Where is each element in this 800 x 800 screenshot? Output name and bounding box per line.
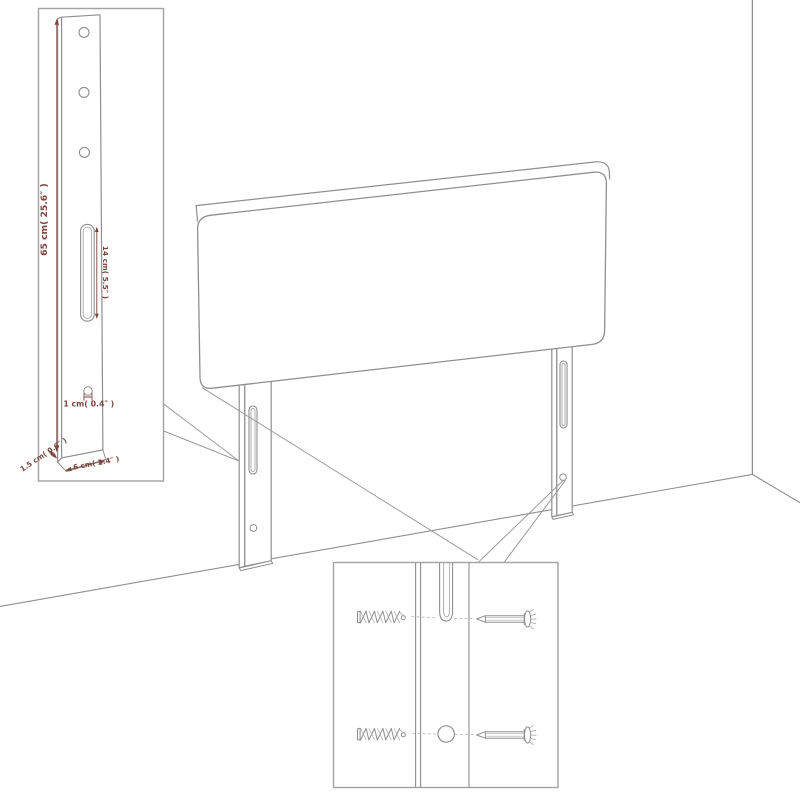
- headboard-panel: [196, 162, 609, 389]
- dim-height-label: 65 cm( 25.6″ ): [39, 183, 50, 256]
- right-leg: [552, 342, 574, 519]
- left-leg-side-face: [239, 380, 245, 568]
- callout-line-hole-to-detail-left: [478, 481, 562, 562]
- strut-inset: 65 cm( 25.6″ ) 14 cm( 5.5″ ) 1 cm( 0.4″ …: [18, 9, 163, 482]
- dim-hole-label: 1 cm( 0.4″ ): [63, 399, 114, 408]
- callout-line-strut-lower: [164, 431, 239, 461]
- diagram-canvas: 65 cm( 25.6″ ) 14 cm( 5.5″ ) 1 cm( 0.4″ …: [0, 0, 800, 800]
- headboard-front-face: [198, 172, 607, 388]
- detail-inset-box: [334, 563, 559, 788]
- dim-slot-label: 14 cm( 5.5″ ): [101, 246, 110, 299]
- callout-line-strut-upper: [164, 404, 239, 461]
- floor-line-right: [752, 474, 800, 502]
- callout-line-hole-to-detail-right: [504, 480, 565, 562]
- headboard-top-edge-left-cap: [196, 206, 197, 221]
- detail-inset: [334, 563, 559, 788]
- callout-lines: [164, 388, 566, 563]
- headboard-assembly-diagram: 65 cm( 25.6″ ) 14 cm( 5.5″ ) 1 cm( 0.4″ …: [0, 0, 800, 800]
- left-leg: [239, 377, 273, 571]
